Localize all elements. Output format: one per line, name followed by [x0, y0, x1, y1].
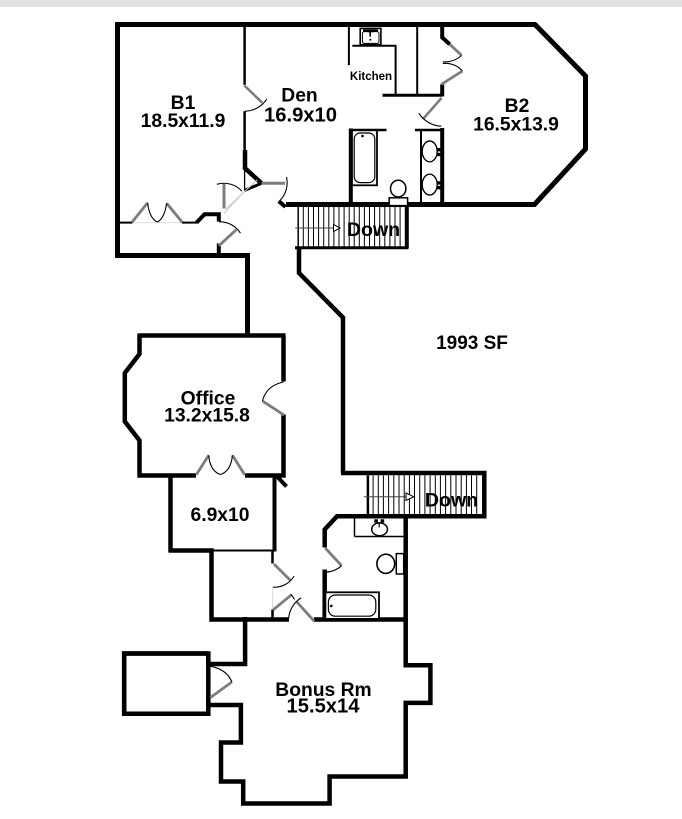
svg-text:13.2x15.8: 13.2x15.8: [164, 406, 250, 427]
svg-text:15.5x14: 15.5x14: [287, 696, 361, 718]
svg-text:1993 SF: 1993 SF: [436, 333, 508, 354]
svg-text:16.5x13.9: 16.5x13.9: [473, 115, 559, 136]
svg-text:6.9x10: 6.9x10: [191, 505, 250, 526]
svg-text:Kitchen: Kitchen: [350, 71, 392, 83]
svg-text:18.5x11.9: 18.5x11.9: [141, 111, 226, 132]
svg-text:Down: Down: [347, 219, 400, 241]
svg-text:16.9x10: 16.9x10: [264, 105, 337, 127]
svg-text:Down: Down: [425, 490, 478, 512]
svg-text:Den: Den: [281, 86, 317, 107]
